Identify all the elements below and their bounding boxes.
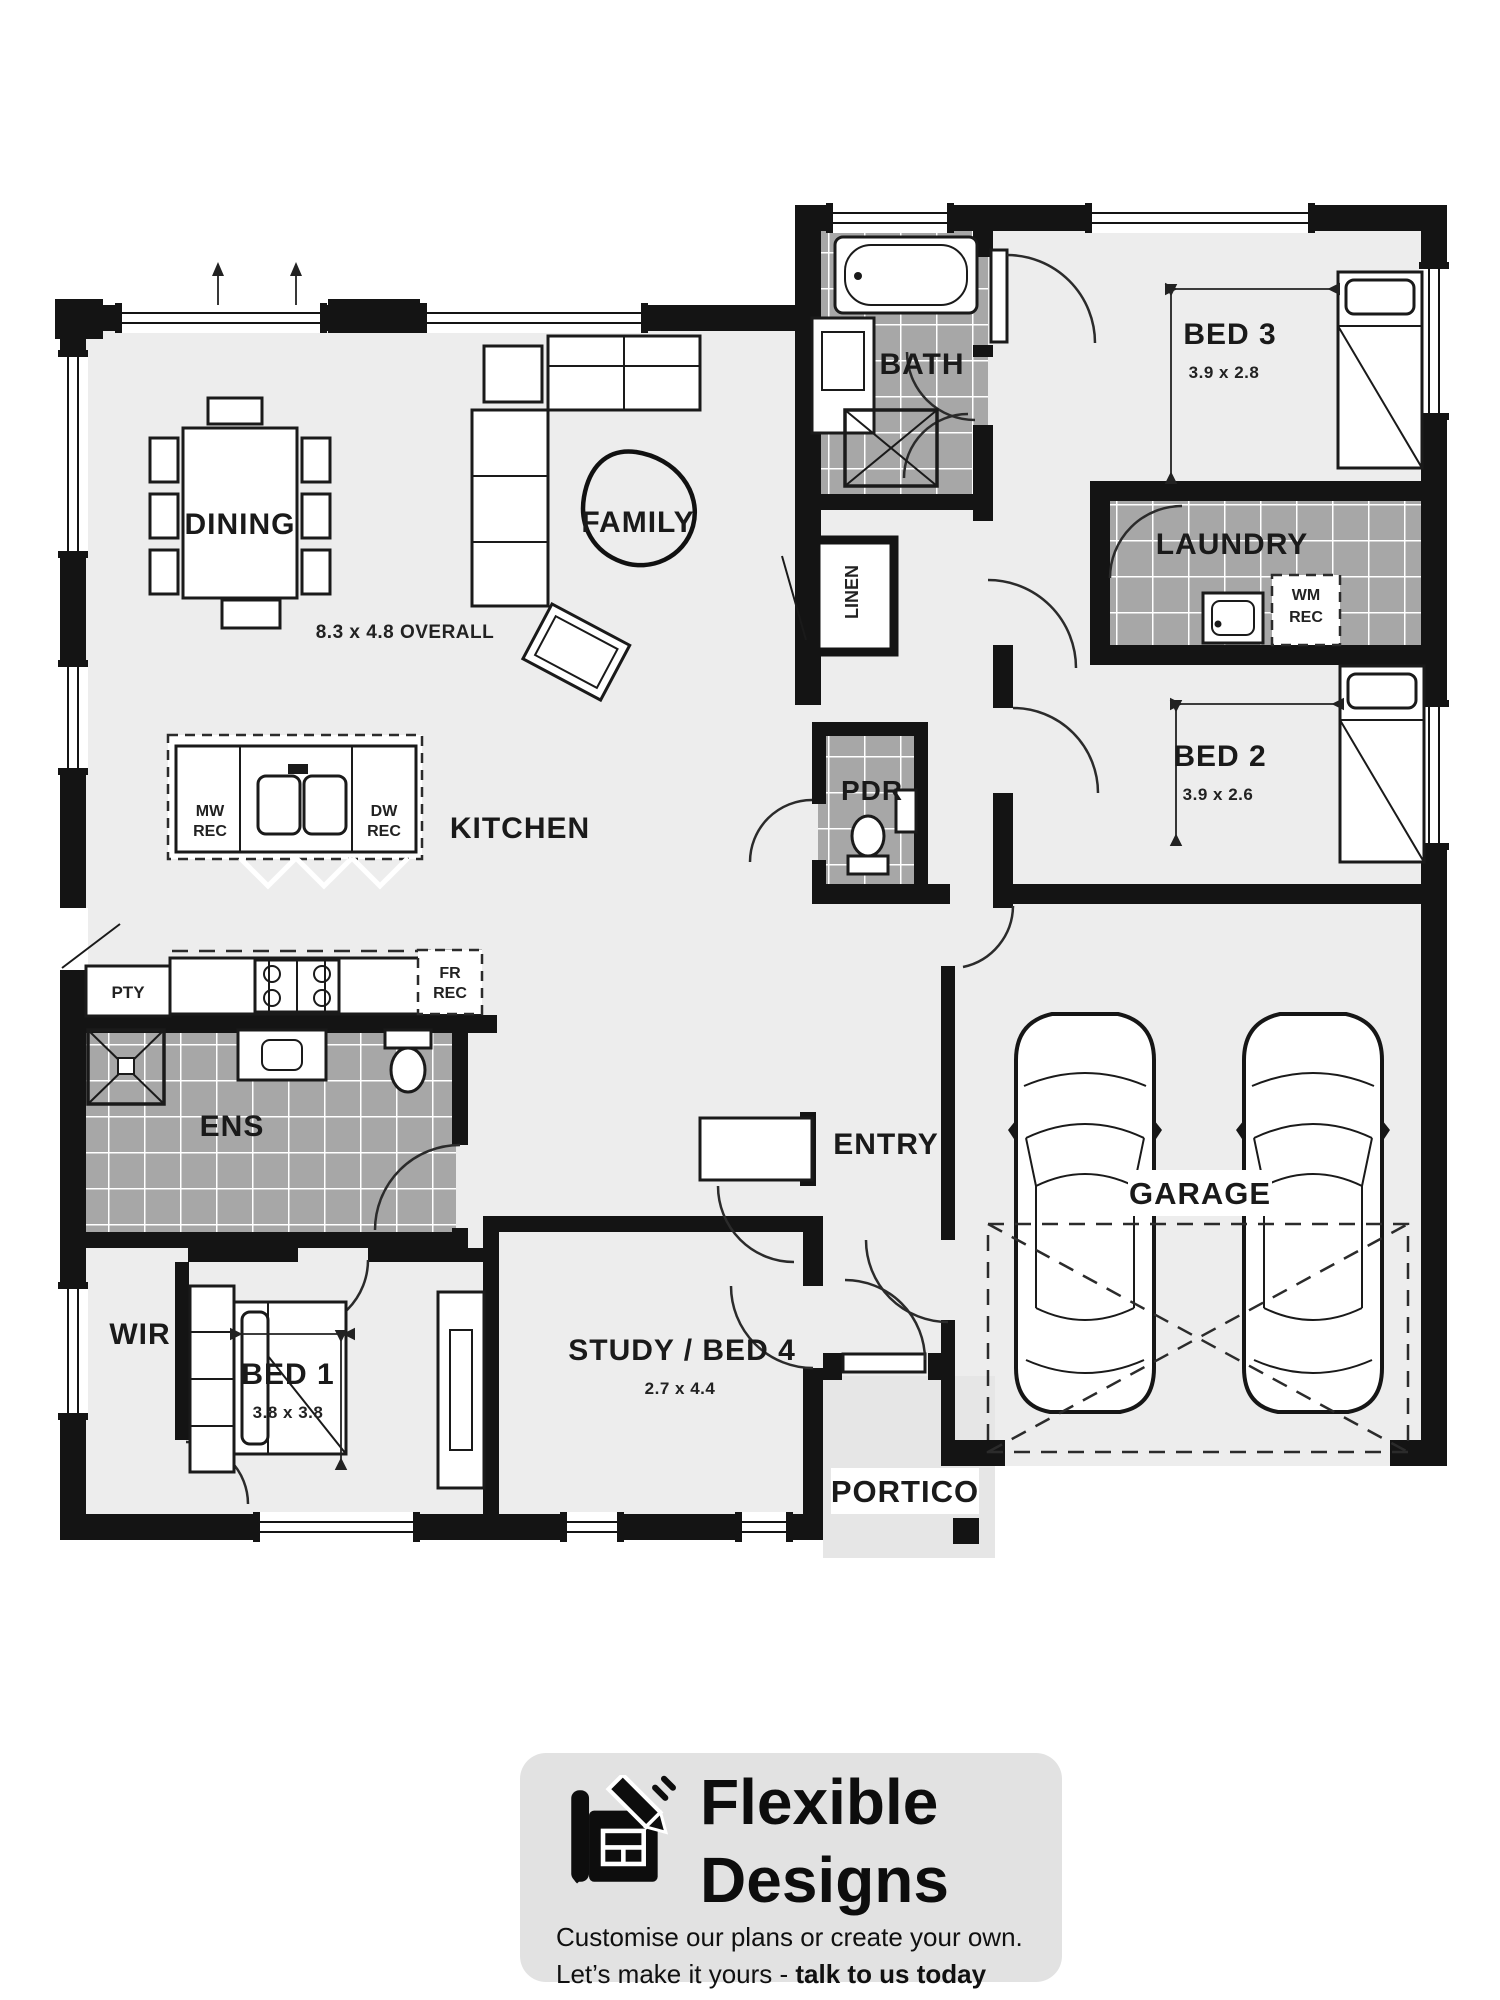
fridge-recess-box xyxy=(418,950,482,1014)
laundry-label: LAUNDRY xyxy=(1156,528,1309,561)
window xyxy=(826,203,954,233)
dining-chair xyxy=(302,438,330,482)
sink-tap xyxy=(288,764,308,774)
dining-label: DINING xyxy=(185,508,296,541)
bed3-bed xyxy=(1338,272,1422,468)
blueprint-pencil-icon xyxy=(571,1775,673,1882)
bath-label: BATH xyxy=(879,348,964,381)
ens-vanity xyxy=(238,1030,326,1080)
mw-rec-label: MW xyxy=(196,803,225,820)
tagline-line2-bold: talk to us today xyxy=(795,1959,986,1989)
bed3-door-panel xyxy=(991,250,1007,342)
pdr-label: PDR xyxy=(841,775,903,806)
brand-name: Flexible Designs xyxy=(700,1763,949,1919)
bed1-dim: 3.8 x 3.8 xyxy=(253,1403,324,1422)
dining-chair xyxy=(150,494,178,538)
dining-chair xyxy=(208,398,262,424)
bed2-bed xyxy=(1340,666,1424,862)
study-label: STUDY / BED 4 xyxy=(568,1334,796,1367)
tagline-line2: Let’s make it yours - talk to us today xyxy=(556,1956,1032,1993)
window xyxy=(58,350,88,558)
dining-chair xyxy=(302,494,330,538)
sofa-chaise xyxy=(472,410,548,606)
window xyxy=(1085,203,1315,233)
toilet xyxy=(848,816,888,874)
floor-plan-page: DINING 8.3 x 4.8 OVERALL FAMILY KITCHEN … xyxy=(0,0,1500,2000)
brand-line1: Flexible xyxy=(700,1763,949,1841)
entry-label: ENTRY xyxy=(833,1128,939,1161)
overall-dim-label: 8.3 x 4.8 OVERALL xyxy=(316,622,495,643)
bed1-label: BED 1 xyxy=(241,1358,334,1391)
kitchen-label: KITCHEN xyxy=(450,812,590,845)
flexible-designs-logo xyxy=(556,1775,678,1897)
wm-rec-label: WM xyxy=(1292,587,1320,604)
wm-rec-label: REC xyxy=(1289,609,1323,626)
dining-chair xyxy=(302,550,330,594)
window xyxy=(735,1512,793,1542)
study-dim: 2.7 x 4.4 xyxy=(645,1379,716,1398)
tagline-line1: Customise our plans or create your own. xyxy=(556,1919,1032,1956)
sink-bowl xyxy=(304,776,346,834)
north-ticks xyxy=(212,262,302,276)
pantry-label: PTY xyxy=(111,983,145,1002)
dining-chair xyxy=(150,550,178,594)
brand-line2: Designs xyxy=(700,1841,949,1919)
linen-label: LINEN xyxy=(842,565,862,619)
dining-chair xyxy=(150,438,178,482)
ensuite-label: ENS xyxy=(200,1110,265,1143)
fr-rec-label: REC xyxy=(433,985,467,1002)
wir-label: WIR xyxy=(109,1318,170,1351)
side-table xyxy=(484,346,542,402)
portico-label: PORTICO xyxy=(831,1474,979,1509)
dw-rec-label: REC xyxy=(367,823,401,840)
cooktop xyxy=(255,960,339,1012)
bed3-label: BED 3 xyxy=(1183,318,1276,351)
front-door-panel xyxy=(843,1354,925,1372)
bed1-robe xyxy=(438,1292,484,1488)
entry-closet xyxy=(700,1118,812,1180)
brand-card: Flexible Designs Customise our plans or … xyxy=(520,1753,1062,1982)
bed2-dim: 3.9 x 2.6 xyxy=(1183,785,1254,804)
bed3-dim: 3.9 x 2.8 xyxy=(1189,363,1260,382)
window xyxy=(420,303,648,333)
tagline-line2-prefix: Let’s make it yours - xyxy=(556,1959,795,1989)
garage-label: GARAGE xyxy=(1129,1176,1271,1211)
fr-rec-label: FR xyxy=(439,965,461,982)
window xyxy=(58,1282,88,1420)
mw-rec-label: REC xyxy=(193,823,227,840)
window xyxy=(560,1512,624,1542)
sink-bowl xyxy=(258,776,300,834)
family-label: FAMILY xyxy=(581,506,694,539)
dw-rec-label: DW xyxy=(371,803,399,820)
dining-chair xyxy=(222,600,280,628)
window xyxy=(253,1512,420,1542)
bath-tap xyxy=(854,272,862,280)
bed2-label: BED 2 xyxy=(1173,740,1266,773)
floor-plan-svg: DINING 8.3 x 4.8 OVERALL FAMILY KITCHEN … xyxy=(0,0,1500,2000)
portico-pier xyxy=(953,1518,979,1544)
window xyxy=(115,303,327,333)
window xyxy=(58,660,88,775)
